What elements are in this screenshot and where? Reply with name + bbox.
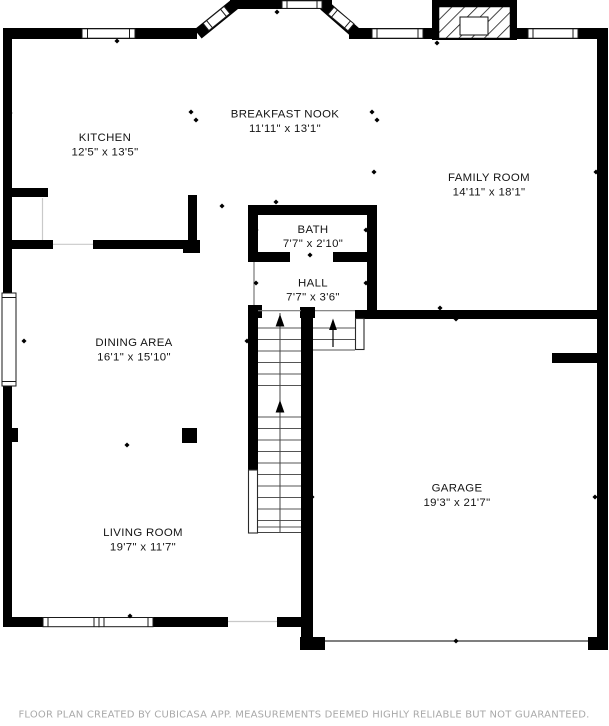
fireplace-firebox <box>460 17 488 35</box>
stair-up-arrow-icon <box>276 314 285 327</box>
window-family-right <box>528 29 578 38</box>
dining-post-right <box>182 428 197 443</box>
garage-stair-up-arrow-icon <box>329 319 337 331</box>
window-family-left <box>372 29 423 38</box>
room-label-dining-area: DINING AREA 16'1" x 15'10" <box>95 337 172 364</box>
window-dining <box>2 293 16 386</box>
pantry-top-wall <box>3 188 48 197</box>
stair-up-arrow2-icon <box>276 400 285 413</box>
staircase-garage-entry <box>313 319 364 351</box>
breakfast-nook-name: BREAKFAST NOOK <box>231 109 340 121</box>
kitchen-bottom-wall-left <box>3 240 53 249</box>
right-wall <box>597 28 608 650</box>
family-room-dims: 14'11" x 18'1" <box>453 187 526 199</box>
breakfast-nook-dims: 11'11" x 13'1" <box>249 123 321 135</box>
kitchen-dims: 12'5" x 13'5" <box>71 147 138 159</box>
room-label-family-room: FAMILY ROOM 14'11" x 18'1" <box>448 172 530 199</box>
window-living-left <box>43 618 99 627</box>
kitchen-name: KITCHEN <box>79 132 131 144</box>
living-room-dims: 19'7" x 11'7" <box>110 542 176 554</box>
hall-name: HALL <box>298 278 328 290</box>
interior-walls <box>3 188 608 637</box>
left-wall-lower <box>3 386 12 627</box>
floor-plan-svg: KITCHEN 12'5" x 13'5" BREAKFAST NOOK 11'… <box>0 0 609 726</box>
kitchen-divider-stub <box>188 195 197 242</box>
hall-dims: 7'7" x 3'6" <box>286 292 340 304</box>
room-label-kitchen: KITCHEN 12'5" x 13'5" <box>71 132 138 159</box>
window-bay-center <box>282 1 322 9</box>
left-wall-upper <box>3 28 12 293</box>
bath-hall-divider-left <box>248 252 290 262</box>
garage-stair-railing <box>356 319 365 350</box>
fireplace <box>432 0 517 40</box>
room-label-breakfast-nook: BREAKFAST NOOK 11'11" x 13'1" <box>231 109 340 136</box>
garage-bottom-wall-left <box>300 637 325 650</box>
garage-right-stub-wall <box>552 353 597 363</box>
garage-left-wall <box>301 307 313 637</box>
garage-dims: 19'3" x 21'7" <box>423 497 490 509</box>
floor-plan-page: KITCHEN 12'5" x 13'5" BREAKFAST NOOK 11'… <box>0 0 609 726</box>
dining-post-left <box>3 428 18 442</box>
bath-hall-divider-right <box>333 252 377 262</box>
bath-dims: 7'7" x 2'10" <box>283 238 343 250</box>
stair-railing <box>249 470 258 533</box>
room-label-hall: HALL 7'7" x 3'6" <box>286 278 340 304</box>
garage-name: GARAGE <box>432 483 483 495</box>
bath-name: BATH <box>298 224 329 236</box>
room-label-bath: BATH 7'7" x 2'10" <box>283 224 343 250</box>
window-kitchen <box>82 29 135 38</box>
garage-bottom-wall-right <box>588 637 608 650</box>
dining-area-name: DINING AREA <box>95 337 172 349</box>
footer-disclaimer: FLOOR PLAN CREATED BY CUBICASA APP. MEAS… <box>18 710 589 721</box>
dining-area-dims: 16'1" x 15'10" <box>97 352 171 364</box>
garage-top-wall <box>355 310 608 319</box>
room-label-living-room: LIVING ROOM 19'7" x 11'7" <box>103 527 183 554</box>
kitchen-bottom-wall-right <box>93 240 183 249</box>
room-labels: KITCHEN 12'5" x 13'5" BREAKFAST NOOK 11'… <box>71 109 529 554</box>
family-room-name: FAMILY ROOM <box>448 172 530 184</box>
bath-top-wall <box>248 205 377 215</box>
stair-left-wall <box>248 315 258 470</box>
living-room-name: LIVING ROOM <box>103 527 183 539</box>
room-label-garage: GARAGE 19'3" x 21'7" <box>423 483 490 510</box>
window-living-right <box>99 618 153 627</box>
